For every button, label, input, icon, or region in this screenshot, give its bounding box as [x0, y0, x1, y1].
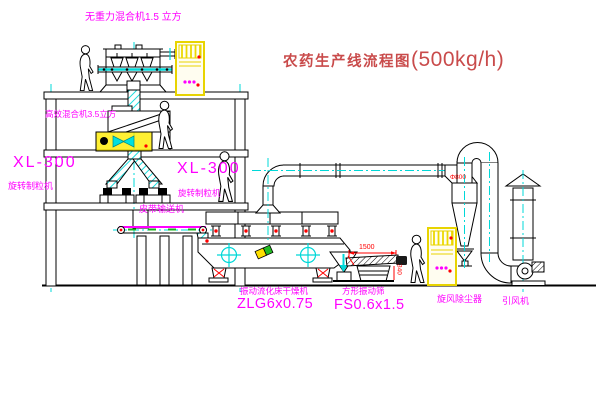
process-flow-drawing: 农药生产线流程图(500kg/h) 无重力混合机1.5 立方 高效混合机3.5立… [0, 0, 600, 403]
label-cyclone: 旋风除尘器 [437, 295, 482, 304]
label-high-eff-mixer: 高效混合机3.5立方 [45, 110, 116, 119]
label-granulator-model-1: XL-300 [13, 155, 77, 171]
label-dryer-model: ZLG6x0.75 [237, 297, 313, 312]
dimension-cyclone-diameter: Φ800 [450, 175, 466, 182]
exhaust-duct [252, 158, 455, 242]
control-cabinet-ground [428, 228, 456, 285]
title-text: 农药生产线流程图 [283, 54, 411, 70]
label-granulator-model-2: XL-300 [177, 161, 241, 177]
drawing-title: 农药生产线流程图(500kg/h) [283, 49, 504, 70]
dimension-sieve-length: 1500 [359, 244, 375, 251]
label-granulator-name-1: 旋转制粒机 [8, 182, 53, 191]
dimension-sieve-height: 340 [395, 264, 402, 275]
person-figure [411, 235, 425, 282]
gravity-free-mixer [98, 45, 175, 92]
label-belt-conveyor: 皮带输送机 [139, 205, 184, 214]
control-cabinet-top [176, 42, 204, 95]
title-capacity: (500kg/h) [411, 48, 504, 71]
person-figure [159, 101, 173, 148]
label-sieve-model: FS0.6x1.5 [334, 298, 405, 313]
granulator-right [136, 181, 170, 203]
label-sieve-name: 方形振动筛 [342, 287, 385, 296]
label-gravity-mixer: 无重力混合机1.5 立方 [85, 13, 182, 23]
label-dryer-name: 振动流化床干燥机 [240, 287, 308, 296]
fluidized-bed-dryer [198, 212, 350, 282]
label-granulator-name-2: 旋转制粒机 [178, 189, 221, 198]
person-figure [80, 46, 93, 91]
belt-conveyor [113, 227, 213, 286]
label-fan: 引风机 [502, 297, 529, 306]
